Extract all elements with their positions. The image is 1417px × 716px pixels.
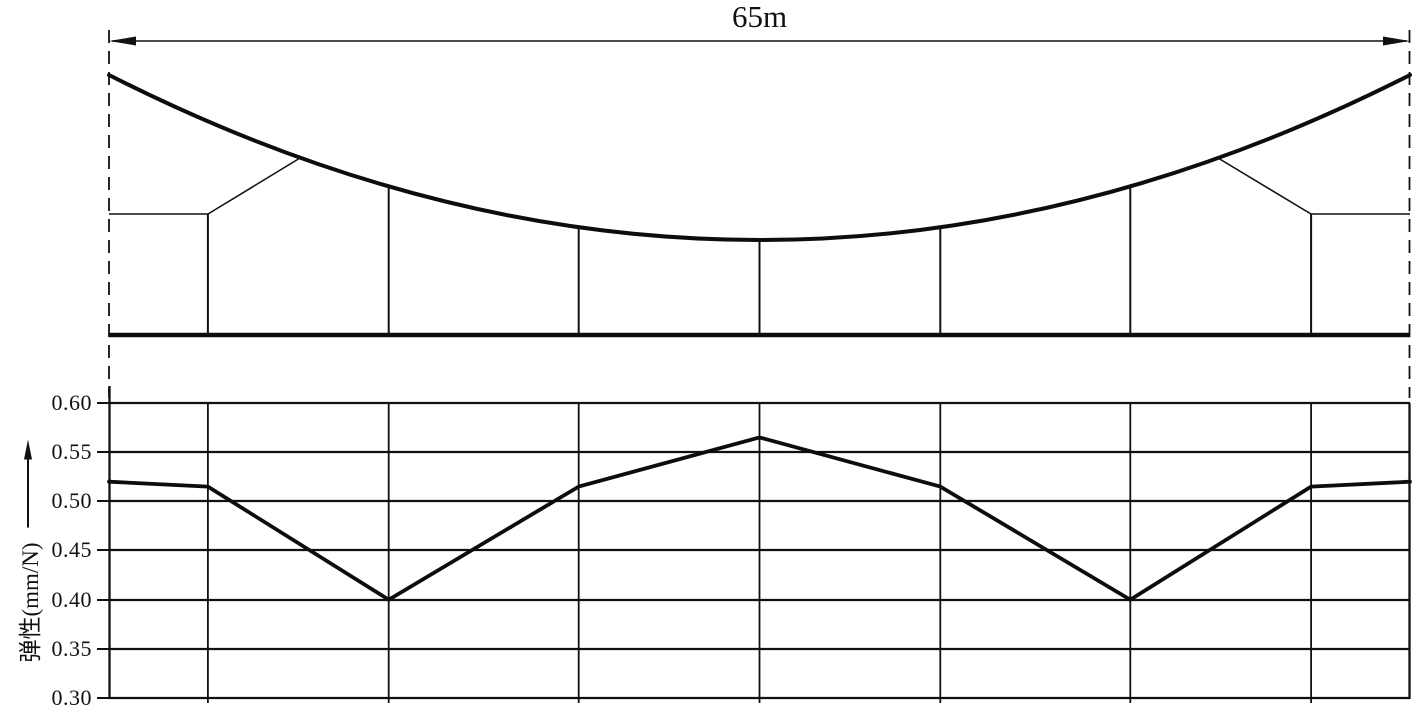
stitch-wire-right — [1218, 158, 1410, 214]
stitch-wire-left — [109, 158, 300, 214]
catenary-elasticity-figure: 65m 0.60 0.55 0.50 0.45 0.40 0.35 0.30 弹… — [0, 0, 1417, 716]
dropper-group — [208, 186, 1311, 335]
up-arrow-icon — [24, 439, 32, 527]
y-axis-title: 弹性(mm/N) — [11, 439, 45, 662]
y-tick-label: 0.30 — [28, 684, 92, 712]
span-dimension-label: 65m — [109, 0, 1410, 34]
y-axis-title-text: 弹性(mm/N) — [11, 542, 45, 662]
dimension-arrow-left-icon — [109, 37, 136, 46]
figure-canvas — [0, 0, 1417, 716]
vertical-gridlines — [208, 403, 1311, 703]
messenger-wire-curve — [109, 75, 1410, 240]
span-dimension — [109, 30, 1410, 398]
catenary-diagram — [109, 75, 1410, 335]
dimension-arrow-right-icon — [1383, 37, 1410, 46]
y-tick-label: 0.60 — [28, 389, 92, 417]
elasticity-chart — [97, 386, 1410, 703]
y-axis-tick-marks — [97, 403, 110, 698]
